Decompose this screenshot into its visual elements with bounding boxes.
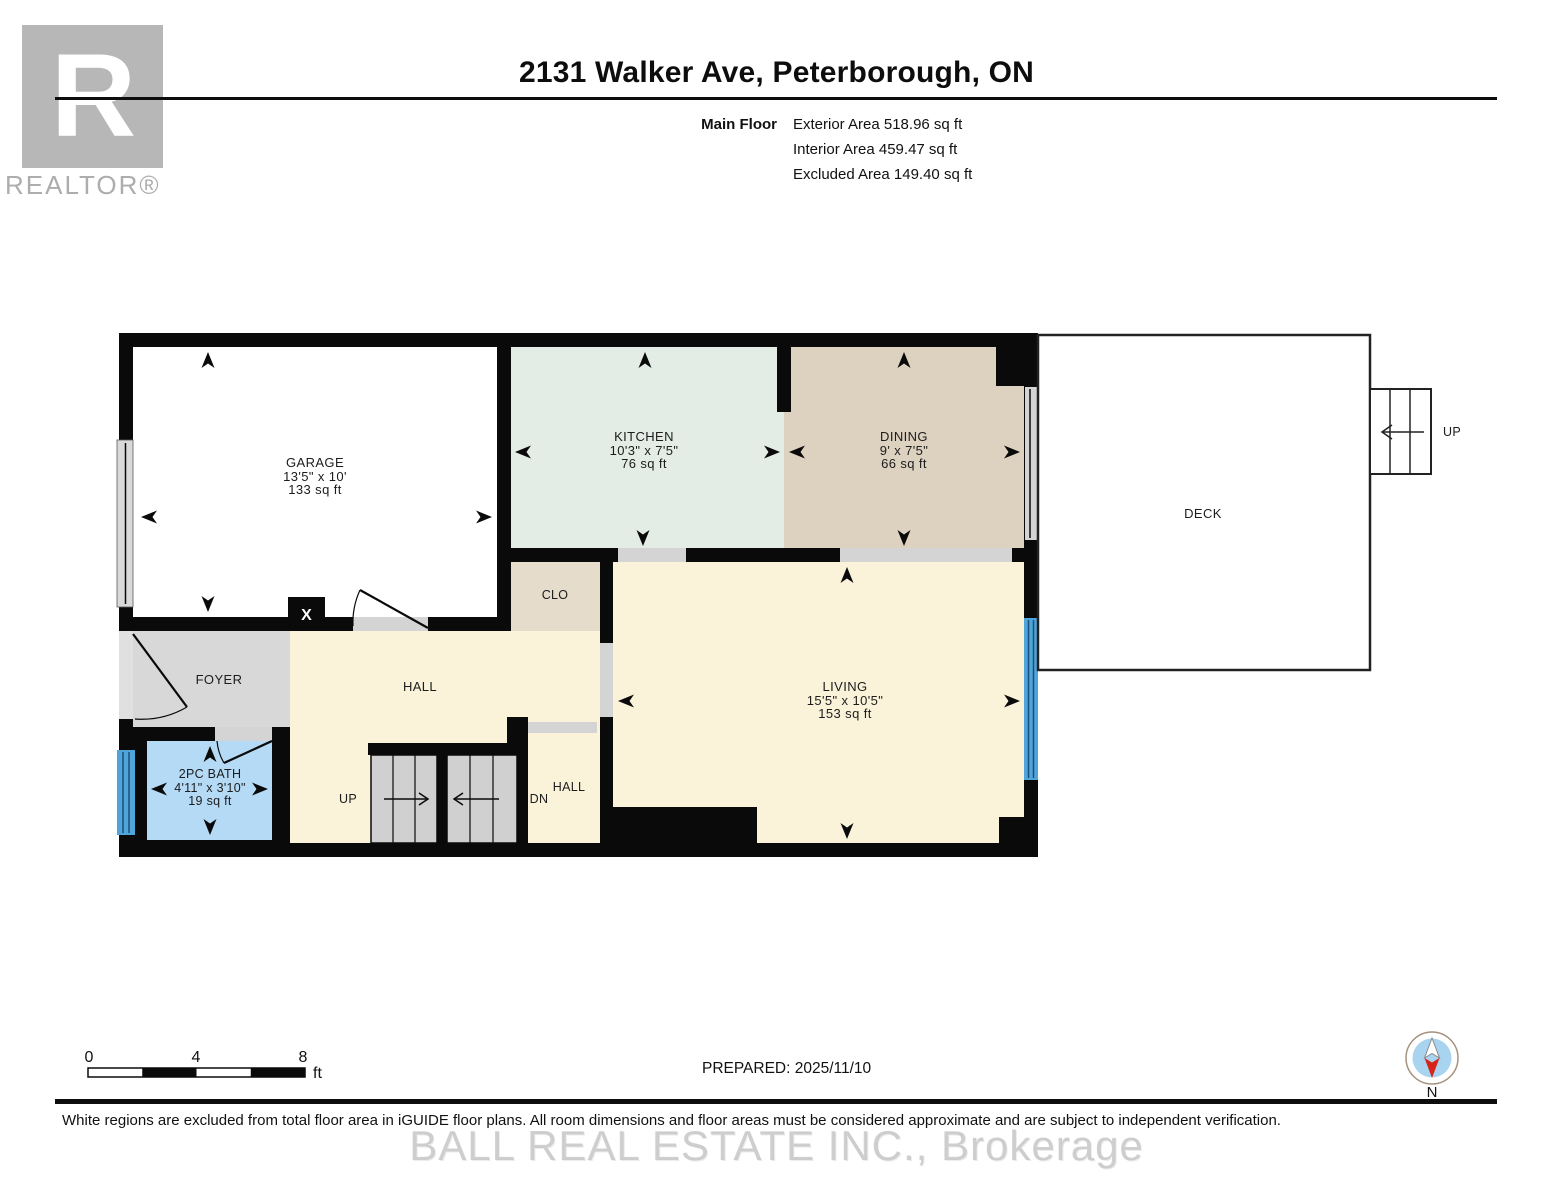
prepared-date: PREPARED: 2025/11/10: [702, 1060, 871, 1078]
hall-label: HALL: [403, 679, 437, 694]
stairs-down-label: DN: [530, 792, 549, 806]
front-door-opening: [119, 631, 133, 719]
kitchen-name-label: KITCHEN: [614, 429, 674, 444]
stairs-up-flight: [371, 755, 437, 843]
hall-lower-opening: [528, 722, 597, 733]
living-name-label: LIVING: [822, 679, 867, 694]
bath-window: [117, 750, 135, 835]
foyer-label: FOYER: [196, 672, 243, 687]
bath-name-label: 2PC BATH: [179, 767, 242, 781]
deck-stairs: [1370, 389, 1431, 474]
garage-name-label: GARAGE: [286, 455, 344, 470]
compass-icon: N: [1406, 1032, 1458, 1101]
brokerage-watermark: BALL REAL ESTATE INC., Brokerage: [0, 1122, 1553, 1170]
kitchen-area-label: 76 sq ft: [621, 456, 667, 471]
scale-tick-0: 0: [85, 1049, 94, 1066]
scale-tick-8: 8: [299, 1049, 308, 1066]
deck-label: DECK: [1184, 506, 1222, 521]
dining-corner-wall: [996, 333, 1038, 386]
footer-rule: [55, 1099, 1497, 1104]
bath-dims-label: 4'11" x 3'10": [174, 781, 246, 795]
living-window: [1024, 618, 1038, 780]
scale-unit-label: ft: [313, 1065, 322, 1082]
stairs-up-label: UP: [339, 792, 357, 806]
dining-name-label: DINING: [880, 429, 928, 444]
bath-area-label: 19 sq ft: [188, 794, 232, 808]
garage-area-label: 133 sq ft: [288, 482, 341, 497]
post-marker: X: [288, 597, 325, 631]
deck: [1038, 335, 1370, 670]
floorplan-page: R REALTOR® 2131 Walker Ave, Peterborough…: [0, 0, 1553, 1200]
scale-tick-4: 4: [192, 1049, 201, 1066]
stairs-down-flight: [447, 755, 517, 843]
header-rule: [55, 97, 1497, 100]
deck-stairs-up-label: UP: [1443, 425, 1461, 439]
scale-bar: 0 4 8 ft: [85, 1049, 323, 1082]
closet-label: CLO: [542, 588, 569, 602]
garage-door: [117, 440, 133, 607]
dining-area-label: 66 sq ft: [881, 456, 927, 471]
dining-window: [1025, 387, 1037, 540]
kitchen-dining-wall-stub: [777, 347, 791, 412]
post-marker-label: X: [301, 607, 312, 624]
hall-lower-label: HALL: [553, 780, 585, 794]
floorplan-drawing: X: [0, 0, 1553, 1200]
living-area-label: 153 sq ft: [818, 706, 871, 721]
